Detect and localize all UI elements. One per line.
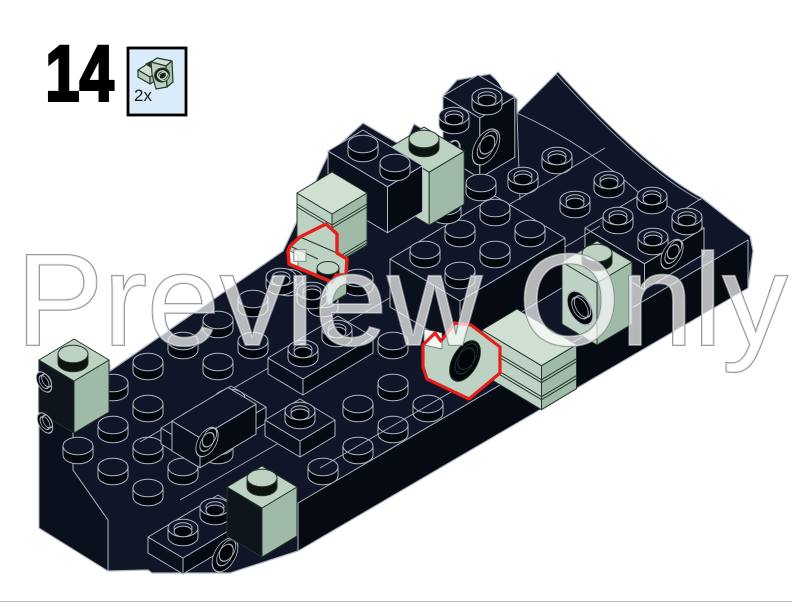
svg-text:14: 14 — [45, 30, 114, 118]
svg-text:2x: 2x — [134, 86, 152, 105]
svg-text:Preview Only: Preview Only — [16, 226, 788, 373]
